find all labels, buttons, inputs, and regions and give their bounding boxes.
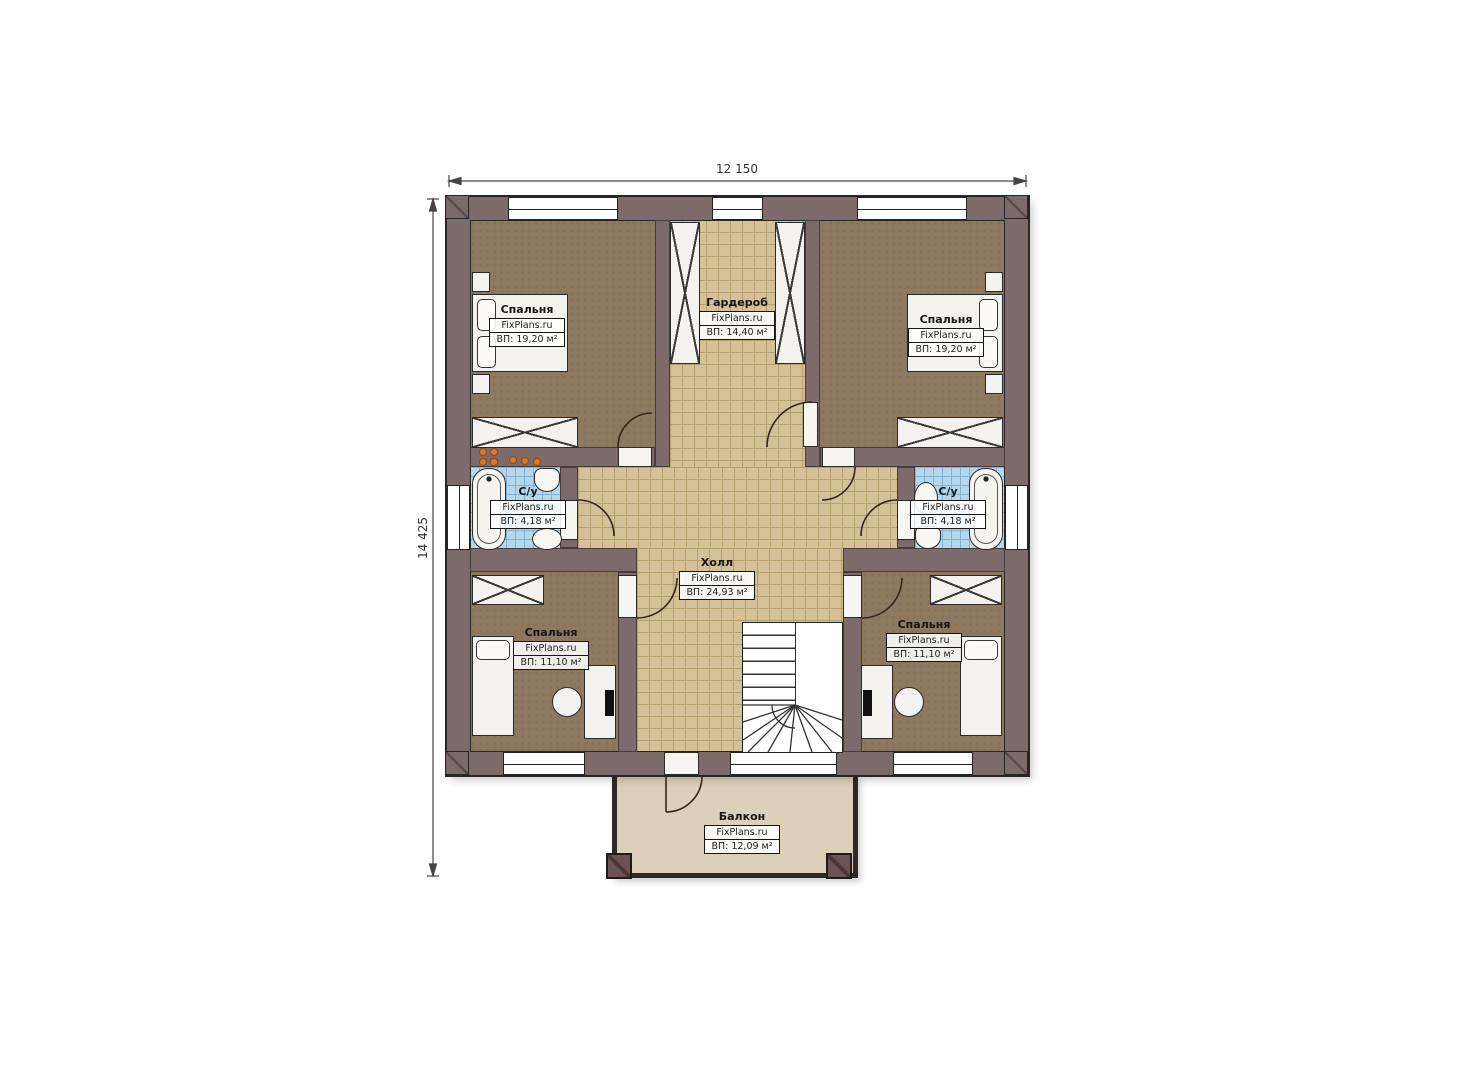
- nightstand: [472, 272, 490, 292]
- dimension-width-label: 12 150: [716, 162, 758, 176]
- door-bedroom-top-left: [618, 447, 652, 467]
- room-label-bedroom-top-left: Спальня FixPlans.ru ВП: 19,20 м²: [489, 303, 565, 347]
- room-name: Спальня: [908, 313, 984, 326]
- closet: [670, 222, 700, 364]
- window-top-left: [508, 197, 618, 220]
- room-info-box: FixPlans.ru ВП: 11,10 м²: [513, 641, 589, 670]
- room-info-box: FixPlans.ru ВП: 12,09 м²: [704, 825, 780, 854]
- room-info-box: FixPlans.ru ВП: 19,20 м²: [489, 318, 565, 347]
- staircase: [742, 622, 843, 753]
- room-info-box: FixPlans.ru ВП: 19,20 м²: [908, 328, 984, 357]
- wardrobe-cabinet: [472, 417, 578, 448]
- brand-watermark: FixPlans.ru: [680, 572, 754, 586]
- room-info-box: FixPlans.ru ВП: 11,10 м²: [886, 633, 962, 662]
- nightstand: [472, 374, 490, 394]
- room-name: Спальня: [489, 303, 565, 316]
- room-info-box: FixPlans.ru ВП: 24,93 м²: [679, 571, 755, 600]
- room-label-hall: Холл FixPlans.ru ВП: 24,93 м²: [679, 556, 755, 600]
- door-wardrobe: [803, 402, 818, 447]
- brand-watermark: FixPlans.ru: [490, 319, 564, 333]
- brand-watermark: FixPlans.ru: [887, 634, 961, 648]
- room-info-box: FixPlans.ru ВП: 14,40 м²: [699, 311, 775, 340]
- room-area: ВП: 19,20 м²: [909, 343, 983, 356]
- corner-pilaster-top-right: [1004, 195, 1028, 219]
- window-bottom-right: [893, 752, 973, 775]
- wardrobe-cabinet: [472, 575, 544, 605]
- dimension-height-label: 14 425: [416, 517, 430, 559]
- room-area: ВП: 24,93 м²: [680, 586, 754, 599]
- dimension-top: [449, 175, 1026, 187]
- nightstand: [985, 374, 1003, 394]
- computer-monitor: [863, 690, 872, 716]
- window-bottom-center: [730, 752, 837, 775]
- balcony-post-left: [606, 853, 632, 879]
- brand-watermark: FixPlans.ru: [700, 312, 774, 326]
- room-name: Спальня: [513, 626, 589, 639]
- window-top-right: [857, 197, 967, 220]
- window-top-center: [712, 197, 763, 220]
- brand-watermark: FixPlans.ru: [514, 642, 588, 656]
- room-label-bedroom-bottom-left: Спальня FixPlans.ru ВП: 11,10 м²: [513, 626, 589, 670]
- floor-plan: 12 150 14 425 Спальня FixPlans.ru ВП: 19…: [0, 0, 1473, 1080]
- room-label-bedroom-top-right: Спальня FixPlans.ru ВП: 19,20 м²: [908, 313, 984, 357]
- room-name: С/у: [490, 485, 566, 498]
- brand-watermark: FixPlans.ru: [491, 501, 565, 515]
- pillow: [964, 640, 998, 660]
- room-area: ВП: 11,10 м²: [887, 648, 961, 661]
- brand-watermark: FixPlans.ru: [705, 826, 779, 840]
- room-info-box: FixPlans.ru ВП: 4,18 м²: [910, 500, 986, 529]
- room-area: ВП: 11,10 м²: [514, 656, 588, 669]
- chair: [552, 687, 582, 717]
- room-label-bathroom-right: С/у FixPlans.ru ВП: 4,18 м²: [910, 485, 986, 529]
- window-right-bathroom: [1005, 485, 1028, 550]
- door-bedroom-top-right: [822, 447, 855, 467]
- room-name: Балкон: [704, 810, 780, 823]
- toilet: [915, 526, 941, 549]
- balcony-post-right: [826, 853, 852, 879]
- wall-wardrobe-left: [655, 220, 670, 467]
- room-label-balcony: Балкон FixPlans.ru ВП: 12,09 м²: [704, 810, 780, 854]
- door-bedroom-bottom-left: [618, 575, 637, 618]
- window-bottom-left: [503, 752, 585, 775]
- window-left-bathroom: [447, 485, 470, 550]
- brand-watermark: FixPlans.ru: [911, 501, 985, 515]
- room-label-bedroom-bottom-right: Спальня FixPlans.ru ВП: 11,10 м²: [886, 618, 962, 662]
- nightstand: [985, 272, 1003, 292]
- room-area: ВП: 12,09 м²: [705, 840, 779, 853]
- pillow: [476, 640, 510, 660]
- room-label-wardrobe: Гардероб FixPlans.ru ВП: 14,40 м²: [699, 296, 775, 340]
- room-area: ВП: 19,20 м²: [490, 333, 564, 346]
- stair-flight: [743, 623, 796, 706]
- brand-watermark: FixPlans.ru: [909, 329, 983, 343]
- door-bedroom-bottom-right: [843, 575, 862, 618]
- corner-pilaster-bottom-right: [1004, 751, 1028, 775]
- computer-monitor: [605, 690, 614, 716]
- wardrobe-cabinet: [897, 417, 1003, 448]
- closet: [775, 222, 805, 364]
- sink: [532, 528, 562, 550]
- room-area: ВП: 4,18 м²: [491, 515, 565, 528]
- room-name: Гардероб: [699, 296, 775, 309]
- corner-pilaster-top-left: [445, 195, 469, 219]
- room-area: ВП: 14,40 м²: [700, 326, 774, 339]
- room-name: Холл: [679, 556, 755, 569]
- room-label-bathroom-left: С/у FixPlans.ru ВП: 4,18 м²: [490, 485, 566, 529]
- room-area: ВП: 4,18 м²: [911, 515, 985, 528]
- room-info-box: FixPlans.ru ВП: 4,18 м²: [490, 500, 566, 529]
- door-balcony: [664, 752, 699, 775]
- room-name: С/у: [910, 485, 986, 498]
- wardrobe-cabinet: [930, 575, 1002, 605]
- wall-stub-left: [470, 548, 637, 572]
- room-name: Спальня: [886, 618, 962, 631]
- chair: [894, 687, 924, 717]
- corner-pilaster-bottom-left: [445, 751, 469, 775]
- wall-stub-right: [843, 548, 1005, 572]
